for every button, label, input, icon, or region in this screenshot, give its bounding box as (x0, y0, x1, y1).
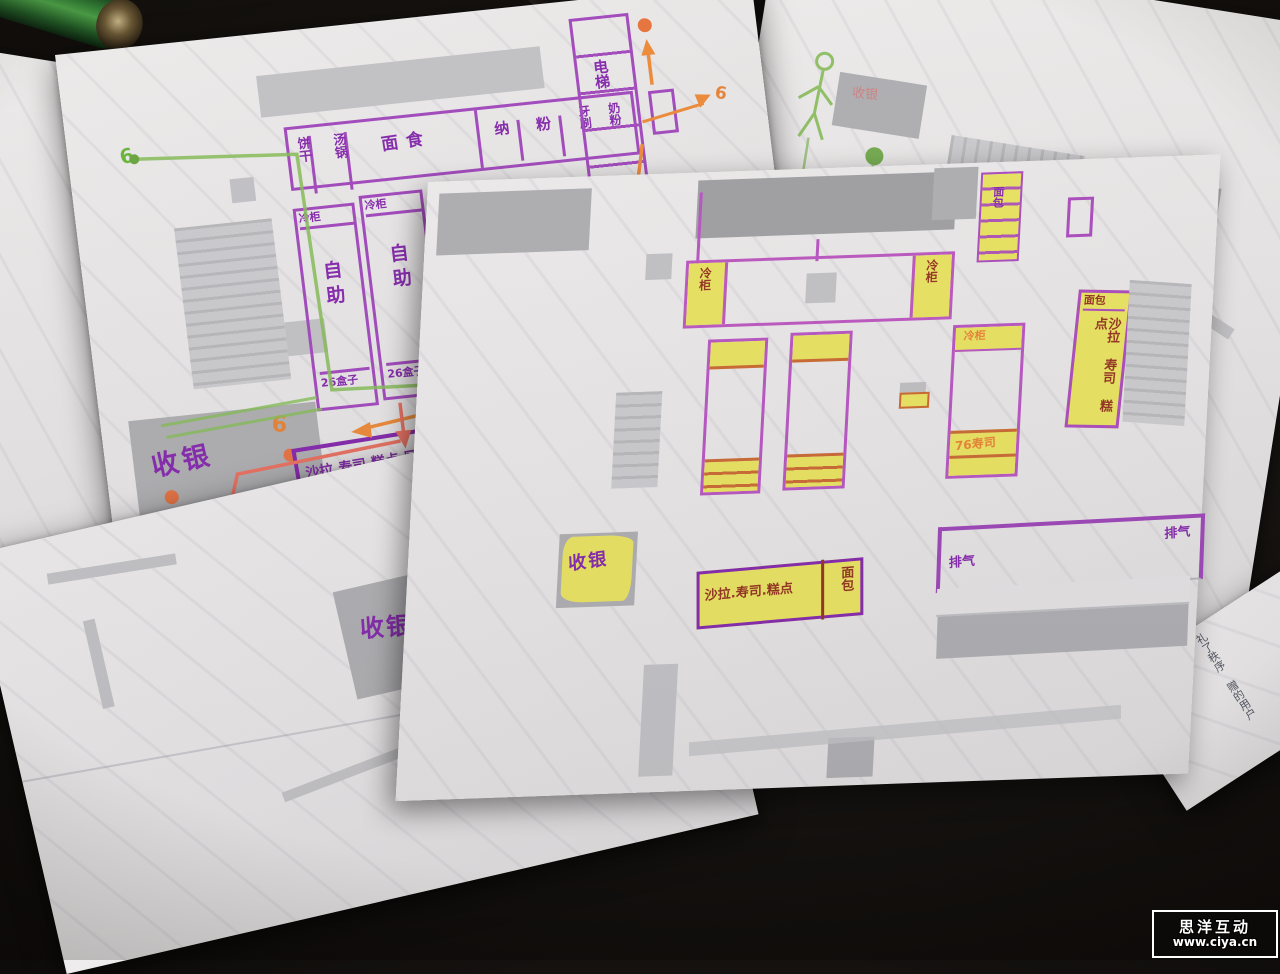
main-cashier-block: 收银 (556, 532, 638, 609)
vent-right-label: 排气 (1164, 525, 1190, 541)
salad-box-side-label: 面包 (839, 565, 853, 592)
tr-purple-outline-box (1066, 197, 1094, 238)
main-shelf-1 (700, 338, 768, 496)
cold-cabinet-gray-square (805, 272, 837, 303)
stair-strip: 面包 (977, 171, 1024, 262)
stair-strip-label: 面包 (991, 186, 1004, 208)
watermark-title: 思洋互动 (1179, 920, 1251, 936)
right-shelf-cap: 冷柜 (955, 326, 1022, 352)
main-small-gray-square (645, 253, 672, 280)
right-shelf-foot: 76寿司 (948, 429, 1017, 476)
cold-right-label: 冷柜 (924, 259, 938, 283)
main-shelf2-top-cap (792, 334, 850, 363)
mini-yellow-block (899, 382, 926, 409)
main-right-stairs (1122, 280, 1191, 426)
tr-gray-block (932, 167, 979, 220)
food-strip-top-label: 面包 (1083, 295, 1127, 311)
salad-box-divider (821, 560, 825, 620)
food-strip-body-label: 沙拉 寿司 糕点 (1083, 317, 1121, 417)
main-right-shelf: 冷柜 76寿司 (945, 323, 1025, 479)
main-shelf-2 (782, 331, 852, 491)
main-gray-topleft (436, 188, 592, 255)
right-shelf-foot-line (949, 454, 1015, 459)
cold-left-label: 冷柜 (698, 267, 712, 291)
main-stairs-column (611, 391, 662, 488)
pen-note: 礼了秩序 赠的用户 (1193, 631, 1273, 746)
cold-cabinet-mid-tick (815, 239, 819, 261)
salad-box: 沙拉.寿司.糕点 面包 (697, 557, 864, 629)
bottom-paper-strip-1 (47, 553, 177, 584)
paper-main-plan: 冷柜 冷柜 冷柜 76寿司 面包 沙拉 寿司 糕点 面包 (396, 154, 1221, 801)
main-vert-strip (638, 664, 678, 777)
bottom-paper-strip-2 (83, 619, 115, 709)
watermark-url: www.ciya.cn (1173, 936, 1257, 949)
vent-left-label: 排气 (949, 555, 975, 571)
mini-yellow-face (899, 392, 930, 409)
right-shelf-cap-label: 冷柜 (963, 330, 986, 342)
cold-cabinet-right-cell: 冷柜 (910, 254, 952, 317)
route-number: 6 (714, 85, 728, 104)
cold-cabinet: 冷柜 冷柜 (683, 251, 955, 328)
watermark: 思洋互动 www.ciya.cn (1152, 910, 1278, 958)
main-shelf1-bottom-cap (703, 458, 759, 493)
salad-box-label: 沙拉.寿司.糕点 (705, 582, 793, 603)
main-gray-topbar (695, 171, 957, 238)
main-bottom-band (689, 705, 1121, 756)
main-shelf2-bottom-cap (786, 453, 844, 488)
main-shelf1-top-cap (710, 341, 766, 370)
right-shelf-foot-label: 76寿司 (955, 436, 996, 453)
cold-cabinet-left-cell: 冷柜 (686, 262, 728, 325)
